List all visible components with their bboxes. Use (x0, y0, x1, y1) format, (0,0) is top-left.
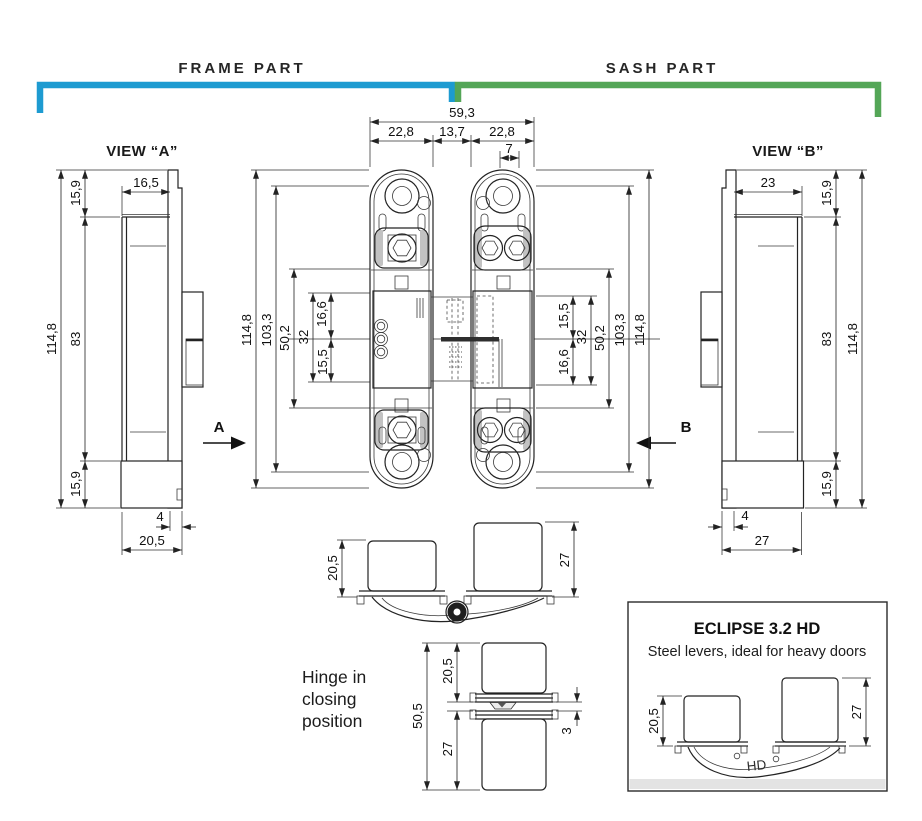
svg-text:83: 83 (68, 332, 83, 347)
dim-center-gap: 13,7 (433, 124, 471, 141)
section-arrow-b-label: B (681, 419, 692, 436)
view-a-dim-top: 15,9 (68, 170, 85, 217)
svg-text:16,6: 16,6 (314, 301, 329, 327)
svg-text:16,5: 16,5 (133, 175, 159, 190)
open-dim-frame-cup: 20,5 (325, 540, 342, 597)
svg-text:50,2: 50,2 (592, 325, 607, 351)
svg-text:27: 27 (755, 533, 770, 548)
info-right-cup (782, 678, 838, 742)
frame-dim-lever-span: 50,2 (277, 269, 294, 408)
svg-text:7: 7 (505, 141, 512, 156)
sash-dim-center-span: 32 (574, 296, 591, 385)
svg-text:27: 27 (849, 705, 864, 720)
view-b-title: VIEW “B” (752, 143, 824, 160)
frame-part-bracket: FRAME PART (40, 60, 452, 113)
sash-dim-screw-span: 103,3 (612, 186, 629, 472)
view-b-dim-bottom: 15,9 (819, 461, 836, 508)
info-left-cup (684, 696, 740, 742)
view-b-dim-depth: 27 (722, 533, 802, 550)
closed-lower-cup (482, 719, 546, 790)
svg-text:32: 32 (574, 330, 589, 345)
svg-text:114,8: 114,8 (632, 314, 647, 346)
closed-dim-total: 50,5 (410, 643, 427, 790)
svg-text:16,6: 16,6 (556, 349, 571, 375)
svg-text:15,5: 15,5 (315, 349, 330, 375)
sash-dim-lever-span: 50,2 (592, 269, 609, 408)
hd-lever-label: HD (746, 757, 767, 774)
lever-arm-edge (441, 337, 499, 342)
svg-text:23: 23 (761, 175, 776, 190)
svg-text:3: 3 (559, 727, 574, 734)
svg-text:15,9: 15,9 (819, 180, 834, 206)
hinge-levers (372, 597, 544, 623)
sash-dim-above-axis: 15,5 (556, 296, 573, 339)
frame-dim-above-axis: 16,6 (314, 293, 331, 339)
closed-dim-lower-cup: 27 (440, 711, 457, 790)
svg-text:32: 32 (296, 330, 311, 345)
hinge-technical-drawing: FRAME PART SASH PART VIEW “A” 114,8 (0, 0, 922, 821)
view-a-title: VIEW “A” (106, 143, 178, 160)
view-b-dim-top: 15,9 (819, 170, 836, 217)
view-a-dim-middle: 83 (68, 217, 85, 461)
view-a-dim-lip: 4 (156, 509, 196, 527)
sash-cup (474, 523, 542, 591)
svg-text:13,7: 13,7 (439, 124, 465, 139)
svg-text:22,8: 22,8 (388, 124, 414, 139)
frame-hinge-body (370, 170, 433, 488)
frame-part-label: FRAME PART (178, 60, 305, 77)
view-a-dim-total-height: 114,8 (44, 170, 61, 508)
closed-dim-upper-cup: 20,5 (440, 643, 457, 702)
drawing-canvas: FRAME PART SASH PART VIEW “A” 114,8 (0, 0, 922, 821)
frame-dim-below-axis: 15,5 (315, 339, 331, 382)
view-a-dim-depth: 20,5 (122, 533, 182, 550)
info-box-subtitle: Steel levers, ideal for heavy doors (648, 644, 866, 660)
svg-text:15,9: 15,9 (819, 471, 834, 497)
frame-dim-total-height: 114,8 (239, 170, 256, 488)
svg-text:20,5: 20,5 (139, 533, 165, 548)
svg-text:59,3: 59,3 (449, 105, 475, 120)
svg-text:114,8: 114,8 (44, 323, 59, 355)
view-b-dim-face-depth: 23 (734, 175, 802, 192)
view-b-dim-middle: 83 (819, 217, 836, 461)
dim-total-width: 59,3 (370, 105, 534, 122)
svg-text:103,3: 103,3 (612, 313, 627, 346)
sash-dim-below-axis: 16,6 (556, 339, 573, 385)
open-position-drawing: 20,5 27 (325, 522, 579, 623)
svg-text:4: 4 (741, 508, 748, 523)
view-a-dim-face-depth: 16,5 (122, 175, 170, 192)
svg-text:4: 4 (156, 509, 163, 524)
dim-frame-width: 22,8 (370, 124, 433, 141)
svg-text:20,5: 20,5 (440, 658, 455, 684)
svg-text:27: 27 (440, 742, 455, 757)
front-view-drawing: 59,3 22,8 13,7 22,8 7 114,8 (239, 105, 660, 488)
dim-sash-width: 22,8 (471, 124, 534, 141)
svg-text:20,5: 20,5 (646, 708, 661, 734)
section-arrow-a-label: A (214, 419, 225, 436)
dim-slot-width: 7 (500, 141, 519, 158)
frame-dim-screw-span: 103,3 (259, 186, 276, 472)
arrow-right-icon (231, 437, 246, 450)
info-box: ECLIPSE 3.2 HD Steel levers, ideal for h… (628, 602, 887, 791)
frame-cup (368, 541, 436, 591)
svg-text:15,5: 15,5 (556, 303, 571, 329)
view-b-dim-total-height: 114,8 (845, 170, 862, 508)
view-b-dim-lip: 4 (708, 508, 749, 527)
sash-hinge-body (471, 170, 534, 488)
info-box-title: ECLIPSE 3.2 HD (694, 620, 821, 638)
open-dim-sash-cup: 27 (557, 522, 574, 597)
view-a-dim-bottom: 15,9 (68, 461, 85, 508)
closing-position-caption: Hinge in closing position (302, 666, 386, 733)
svg-text:15,9: 15,9 (68, 471, 83, 497)
svg-text:22,8: 22,8 (489, 124, 515, 139)
svg-text:15,9: 15,9 (68, 180, 83, 206)
section-arrow-a: A (203, 419, 246, 450)
view-b-drawing: VIEW “B” 23 15,9 83 (701, 143, 867, 555)
closed-upper-cup (482, 643, 546, 693)
closed-position-drawing: 20,5 50,5 27 3 (410, 643, 582, 790)
svg-text:50,2: 50,2 (277, 325, 292, 351)
section-arrow-b: B (636, 419, 692, 450)
svg-text:50,5: 50,5 (410, 703, 425, 729)
sash-part-bracket: SASH PART (458, 60, 878, 117)
svg-text:83: 83 (819, 332, 834, 347)
svg-text:27: 27 (557, 553, 572, 568)
svg-text:114,8: 114,8 (845, 323, 860, 355)
frame-dim-center-span: 32 (296, 293, 313, 382)
sash-part-label: SASH PART (606, 60, 719, 77)
svg-text:103,3: 103,3 (259, 313, 274, 346)
view-a-drawing: VIEW “A” 114,8 15,9 8 (44, 143, 203, 555)
svg-text:114,8: 114,8 (239, 314, 254, 346)
svg-text:20,5: 20,5 (325, 555, 340, 581)
